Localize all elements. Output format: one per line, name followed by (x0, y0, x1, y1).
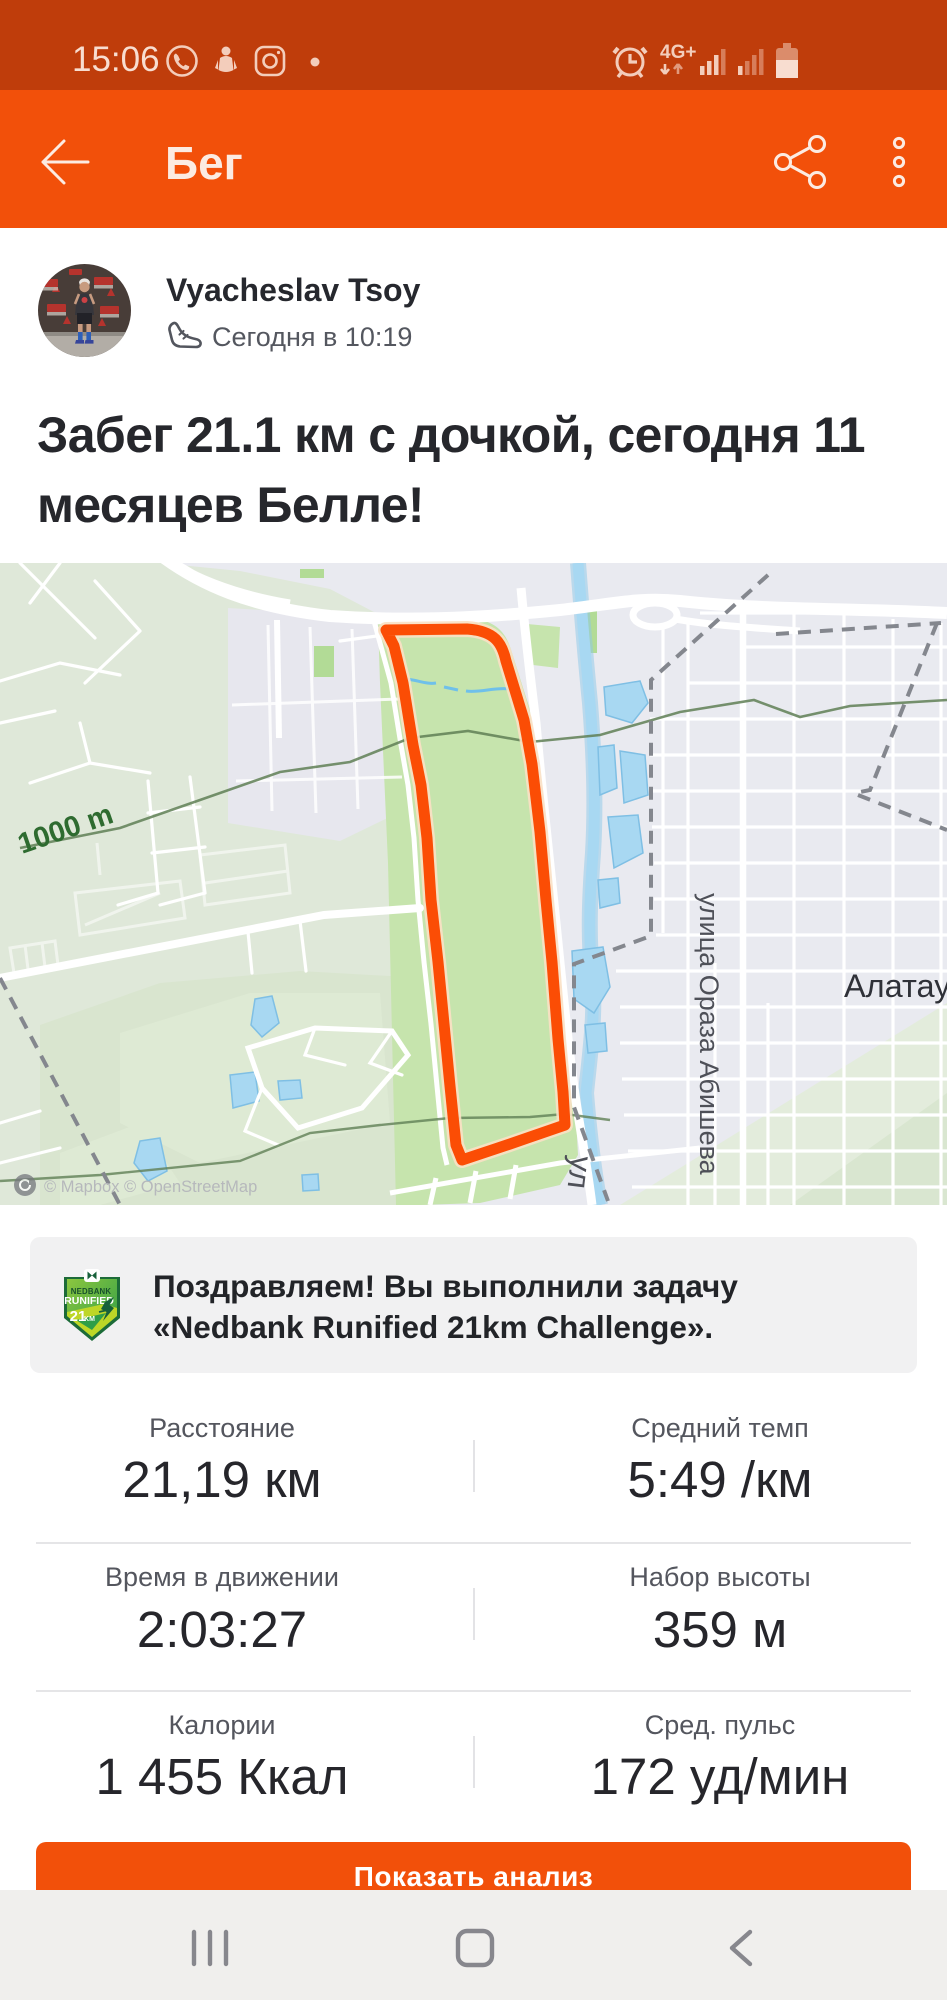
svg-text:улица Ораза Абишева: улица Ораза Абишева (694, 893, 724, 1176)
svg-text:KM: KM (84, 1316, 95, 1323)
svg-text:ул: ул (561, 1154, 600, 1191)
svg-text:© Mapbox © OpenStreetMap: © Mapbox © OpenStreetMap (44, 1178, 257, 1196)
svg-text:4G+: 4G+ (660, 42, 696, 63)
svg-text:Алатау: Алатау (844, 968, 947, 1004)
